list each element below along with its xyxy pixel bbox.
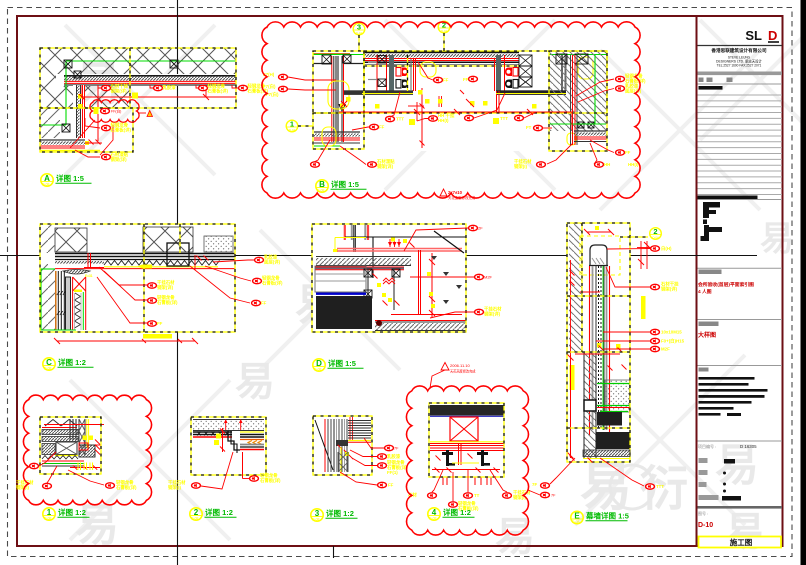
svg-text:图号 :: 图号 : [698, 510, 708, 516]
svg-text:TTT: TTT [396, 117, 404, 122]
svg-text:D-08: D-08 [42, 183, 49, 187]
svg-text:详图 1:2: 详图 1:2 [58, 507, 86, 517]
svg-text:钢架(详): 钢架(详) [661, 286, 678, 293]
svg-text:易: 易 [235, 360, 275, 404]
svg-text:钢架(详): 钢架(详) [111, 88, 128, 95]
svg-text:D-04: D-04 [289, 128, 296, 132]
svg-text:钢架(I): 钢架(I) [168, 484, 181, 491]
svg-text:FF: FF [463, 77, 469, 82]
svg-text:D-04: D-04 [652, 235, 659, 239]
svg-text:FF: FF [157, 321, 163, 326]
svg-text:SL: SL [745, 28, 762, 43]
svg-text:2006.11.10: 2006.11.10 [450, 363, 470, 368]
svg-text:D: D [316, 359, 322, 368]
svg-text:乳胶漆: 乳胶漆 [387, 453, 401, 460]
svg-text:详图 1:2: 详图 1:2 [326, 508, 354, 518]
svg-text:4: 4 [432, 508, 437, 517]
svg-text:石膏板(详): 石膏板(详) [111, 127, 132, 134]
svg-text:详图 1:5: 详图 1:5 [328, 358, 356, 368]
svg-text:详图 1:5: 详图 1:5 [331, 179, 359, 189]
svg-text:乳胶漆: 乳胶漆 [163, 84, 177, 91]
svg-text:项目编号 :: 项目编号 : [698, 443, 716, 449]
svg-text:FF: FF [388, 483, 394, 488]
svg-text:钢架(详): 钢架(详) [484, 311, 501, 318]
svg-text:钢架(I): 钢架(I) [514, 163, 527, 170]
svg-text:A: A [44, 174, 50, 183]
svg-text:FF: FF [261, 301, 267, 306]
svg-text:D-08: D-08 [44, 517, 51, 521]
svg-text:易: 易 [760, 220, 794, 258]
svg-text:TTT: TTT [656, 484, 664, 489]
svg-text:F7(白): F7(白) [266, 91, 279, 98]
svg-text:香港思联建筑设计有限公司: 香港思联建筑设计有限公司 [710, 47, 767, 54]
svg-text:HH(I): HH(I) [438, 118, 449, 123]
svg-text:E: E [574, 511, 580, 520]
svg-text:F7(白): F7(白) [263, 83, 276, 90]
svg-text:7F: 7F [394, 447, 399, 451]
svg-text:FF: FF [443, 78, 449, 83]
svg-text:天花高度修改完成: 天花高度修改完成 [450, 369, 476, 374]
svg-text:1: 1 [47, 508, 52, 517]
svg-text:D-10: D-10 [698, 522, 713, 529]
svg-text:2x7±10: 2x7±10 [448, 190, 463, 195]
svg-text:石膏板(详): 石膏板(详) [260, 477, 281, 484]
svg-text:7F: 7F [532, 482, 537, 487]
svg-text:白(H): 白(H) [661, 245, 672, 252]
svg-text:石膏板(详): 石膏板(详) [208, 88, 229, 95]
svg-text:钢架(详): 钢架(详) [377, 163, 394, 170]
svg-text:石膏板(详): 石膏板(详) [262, 280, 283, 287]
svg-text:3: 3 [315, 509, 320, 518]
svg-text:D-08: D-08 [312, 518, 319, 522]
svg-text:D-08: D-08 [317, 189, 324, 193]
svg-text:钢架(详): 钢架(详) [111, 156, 128, 163]
svg-text:详图 1:2: 详图 1:2 [58, 357, 86, 367]
svg-text:D-08: D-08 [44, 367, 51, 371]
svg-text:D-08: D-08 [191, 517, 198, 521]
svg-text:D: D [768, 28, 777, 43]
svg-text:M2F: M2F [661, 347, 670, 352]
svg-text:详图 1:5: 详图 1:5 [56, 173, 84, 183]
svg-text:D-08: D-08 [572, 520, 579, 524]
svg-text:7F: 7F [551, 494, 556, 498]
svg-text:HH: HH [604, 162, 610, 167]
svg-text:D-04: D-04 [356, 31, 363, 35]
svg-text:FT: FT [526, 125, 532, 130]
svg-text:大样图: 大样图 [698, 331, 716, 339]
svg-text:详图 1:2: 详图 1:2 [443, 507, 471, 517]
svg-text:会所验收(首层)平面索引图: 会所验收(首层)平面索引图 [697, 281, 754, 288]
svg-text:FF(1): FF(1) [387, 470, 398, 475]
svg-text:面层(详): 面层(详) [264, 259, 281, 266]
svg-text:C: C [46, 358, 52, 367]
svg-text:2: 2 [194, 508, 199, 517]
svg-text:D-04: D-04 [441, 29, 448, 33]
svg-text:施工图: 施工图 [730, 537, 753, 547]
svg-text:4 人图: 4 人图 [698, 288, 712, 295]
svg-text:B: B [319, 180, 325, 189]
svg-text:石膏板(详): 石膏板(详) [116, 484, 137, 491]
svg-text:FF(白): FF(白) [111, 109, 121, 114]
svg-text:HH(I): HH(I) [628, 162, 639, 167]
svg-text:2F: 2F [478, 226, 483, 231]
svg-text:FF: FF [379, 125, 385, 130]
svg-text:M2F: M2F [484, 275, 493, 280]
svg-text:D 16305: D 16305 [740, 444, 757, 449]
svg-text:详图 1:2: 详图 1:2 [205, 507, 233, 517]
svg-text:F0+(白)H15: F0+(白)H15 [661, 338, 685, 345]
svg-text:10x10M15: 10x10M15 [661, 330, 682, 335]
svg-text:天花造型修改完成: 天花造型修改完成 [448, 195, 476, 200]
svg-text:FF: FF [625, 150, 631, 155]
svg-text:D-08: D-08 [429, 517, 436, 521]
svg-text:幕墙详图 1:5: 幕墙详图 1:5 [585, 511, 629, 521]
svg-text:TTT: TTT [500, 116, 508, 121]
svg-text:石膏板(详): 石膏板(详) [157, 299, 178, 306]
svg-text:TEL:2527 1600 FAX:2527 2071: TEL:2527 1600 FAX:2527 2071 [717, 64, 762, 68]
svg-text:TT: TT [474, 493, 480, 498]
svg-text:钢架(详): 钢架(详) [157, 284, 174, 291]
svg-text:D-08: D-08 [314, 368, 321, 372]
